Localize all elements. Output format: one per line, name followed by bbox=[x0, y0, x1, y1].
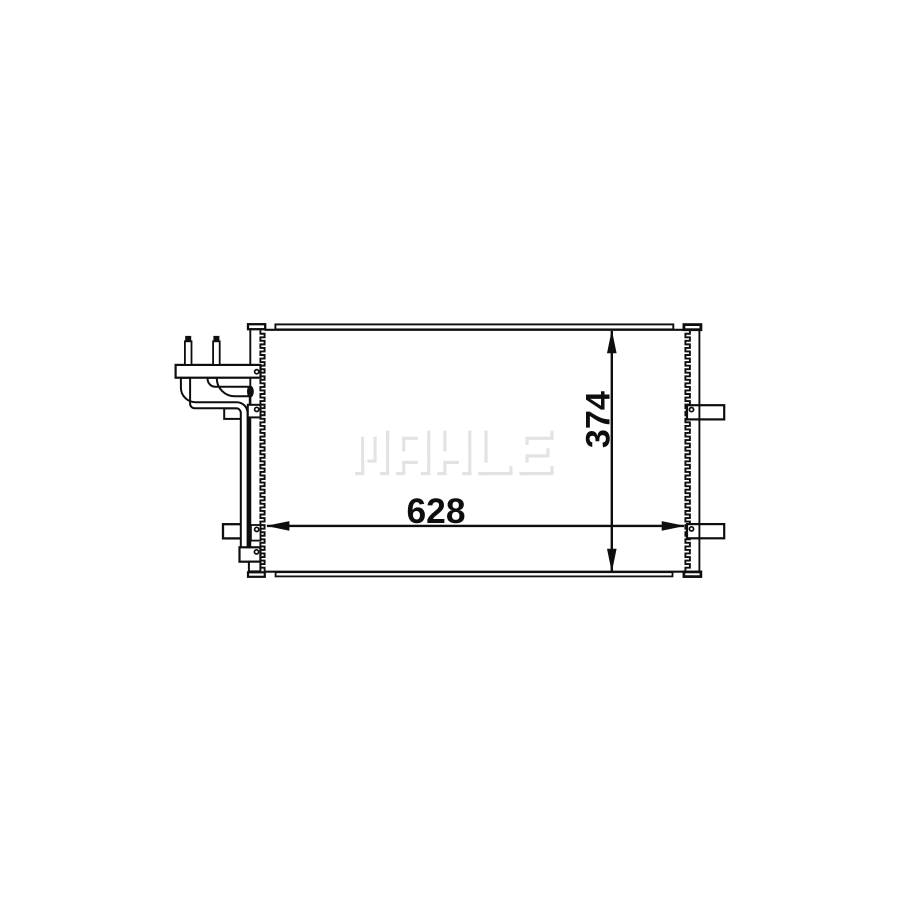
svg-text:374: 374 bbox=[579, 391, 617, 448]
svg-text:628: 628 bbox=[407, 491, 466, 531]
